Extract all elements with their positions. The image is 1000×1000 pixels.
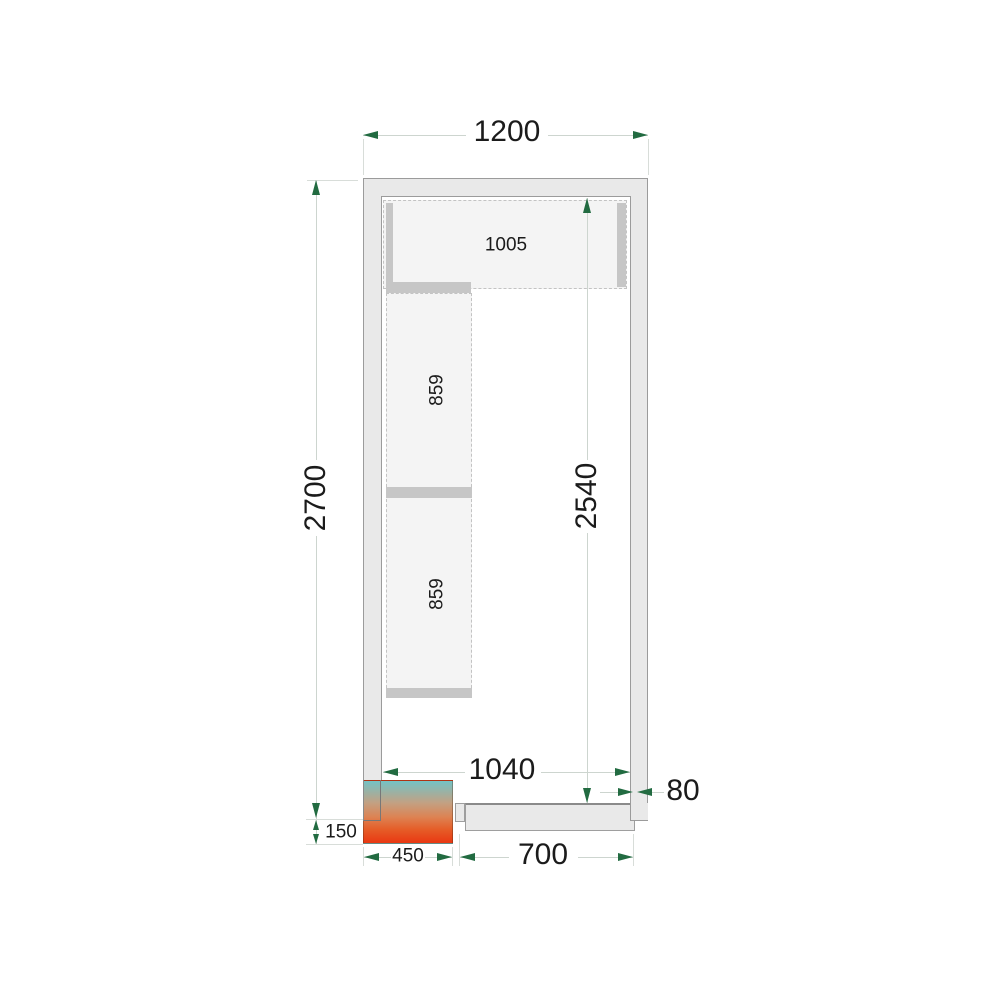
- wall-thickness-label: 80: [666, 776, 699, 806]
- dimension-line: [316, 180, 317, 460]
- arrow-up-icon: [313, 820, 319, 830]
- extension-line: [459, 834, 460, 866]
- reference-line: [306, 844, 363, 845]
- overall-width-label: 1200: [474, 117, 541, 147]
- dimension-line: [316, 536, 317, 845]
- cold-room-plan-drawing: 1005 859 859 1200 2700 2540: [0, 0, 1000, 1000]
- door-leaf: [465, 803, 635, 831]
- dimension-line: [652, 792, 664, 793]
- arrow-left-icon: [364, 853, 379, 861]
- shelf-left-bottom-bracket: [386, 688, 472, 698]
- arrow-left-icon: [363, 131, 378, 139]
- arrow-left-icon: [460, 853, 475, 861]
- arrow-right-icon: [437, 853, 452, 861]
- arrow-up-icon: [312, 180, 320, 195]
- arrow-down-icon: [583, 788, 591, 803]
- shelf-left-upper-length-label: 859: [428, 374, 447, 406]
- unit-width-label: 450: [392, 847, 424, 866]
- dimension-line: [600, 792, 618, 793]
- dimension-line: [587, 533, 588, 803]
- extension-line: [633, 834, 634, 866]
- shelf-left-lower-length-label: 859: [428, 578, 447, 610]
- shelf-top-left-bracket: [386, 203, 393, 287]
- shelf-left-middle-bracket: [386, 487, 472, 498]
- arrow-right-icon: [633, 131, 648, 139]
- extension-line: [452, 847, 453, 866]
- arrow-down-icon: [313, 834, 319, 844]
- overall-depth-label: 2700: [301, 465, 331, 532]
- inner-depth-label: 2540: [572, 463, 602, 530]
- arrow-right-icon: [618, 788, 633, 796]
- arrow-left-icon: [637, 788, 652, 796]
- arrow-up-icon: [583, 198, 591, 213]
- shelf-top-length-label: 1005: [485, 236, 527, 255]
- door-clearance-label: 700: [518, 840, 568, 870]
- wall-bottom-right-end: [630, 803, 648, 821]
- arrow-right-icon: [618, 853, 633, 861]
- wall-bottom-left-end: [363, 780, 381, 821]
- inner-width-label: 1040: [469, 755, 536, 785]
- arrow-down-icon: [312, 803, 320, 818]
- unit-overhang-label: 150: [325, 823, 357, 842]
- shelf-top-bottom-bracket: [386, 282, 471, 293]
- dimension-line: [363, 135, 466, 136]
- door-jamb: [455, 803, 465, 822]
- arrow-right-icon: [615, 768, 630, 776]
- arrow-left-icon: [383, 768, 398, 776]
- extension-line: [363, 139, 364, 175]
- extension-line: [648, 139, 649, 175]
- shelf-top-right-bracket: [617, 203, 626, 287]
- dimension-line: [587, 198, 588, 460]
